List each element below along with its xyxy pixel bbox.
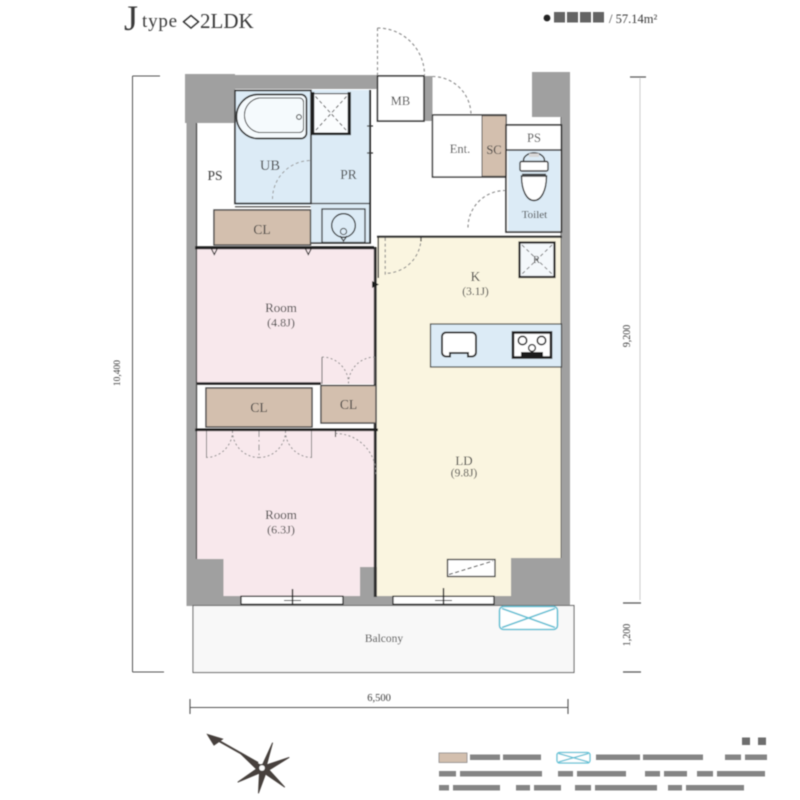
svg-text:CL: CL xyxy=(250,400,267,415)
svg-text:1,200: 1,200 xyxy=(622,624,633,647)
svg-text:CL: CL xyxy=(340,397,357,412)
svg-text:LD: LD xyxy=(455,453,472,468)
svg-text:J: J xyxy=(124,0,138,38)
svg-text:Balcony: Balcony xyxy=(365,633,404,645)
svg-text:9,200: 9,200 xyxy=(622,325,633,348)
svg-text:Room: Room xyxy=(265,300,297,315)
svg-text:(3.1J): (3.1J) xyxy=(462,286,489,298)
svg-text:/ 57.14m²: / 57.14m² xyxy=(609,12,657,26)
svg-text:CL: CL xyxy=(253,222,270,237)
svg-text:Ent.: Ent. xyxy=(450,142,470,156)
svg-text:PS: PS xyxy=(207,168,222,183)
svg-text:Room: Room xyxy=(265,507,297,522)
svg-text:6,500: 6,500 xyxy=(367,693,391,704)
svg-text:SC: SC xyxy=(486,143,501,157)
svg-text:R: R xyxy=(533,255,540,266)
svg-text:MB: MB xyxy=(391,94,410,108)
svg-text:UB: UB xyxy=(260,158,280,174)
svg-text:K: K xyxy=(471,269,481,284)
svg-text:(6.3J): (6.3J) xyxy=(267,523,295,537)
svg-text:PS: PS xyxy=(527,131,541,145)
svg-text:2LDK: 2LDK xyxy=(200,9,254,33)
svg-text:PR: PR xyxy=(340,167,357,182)
svg-text:(9.8J): (9.8J) xyxy=(451,468,478,480)
svg-text:(4.8J): (4.8J) xyxy=(267,316,295,330)
svg-text:Toilet: Toilet xyxy=(522,209,548,221)
svg-text:type: type xyxy=(142,11,178,32)
svg-text:10,400: 10,400 xyxy=(113,360,123,386)
